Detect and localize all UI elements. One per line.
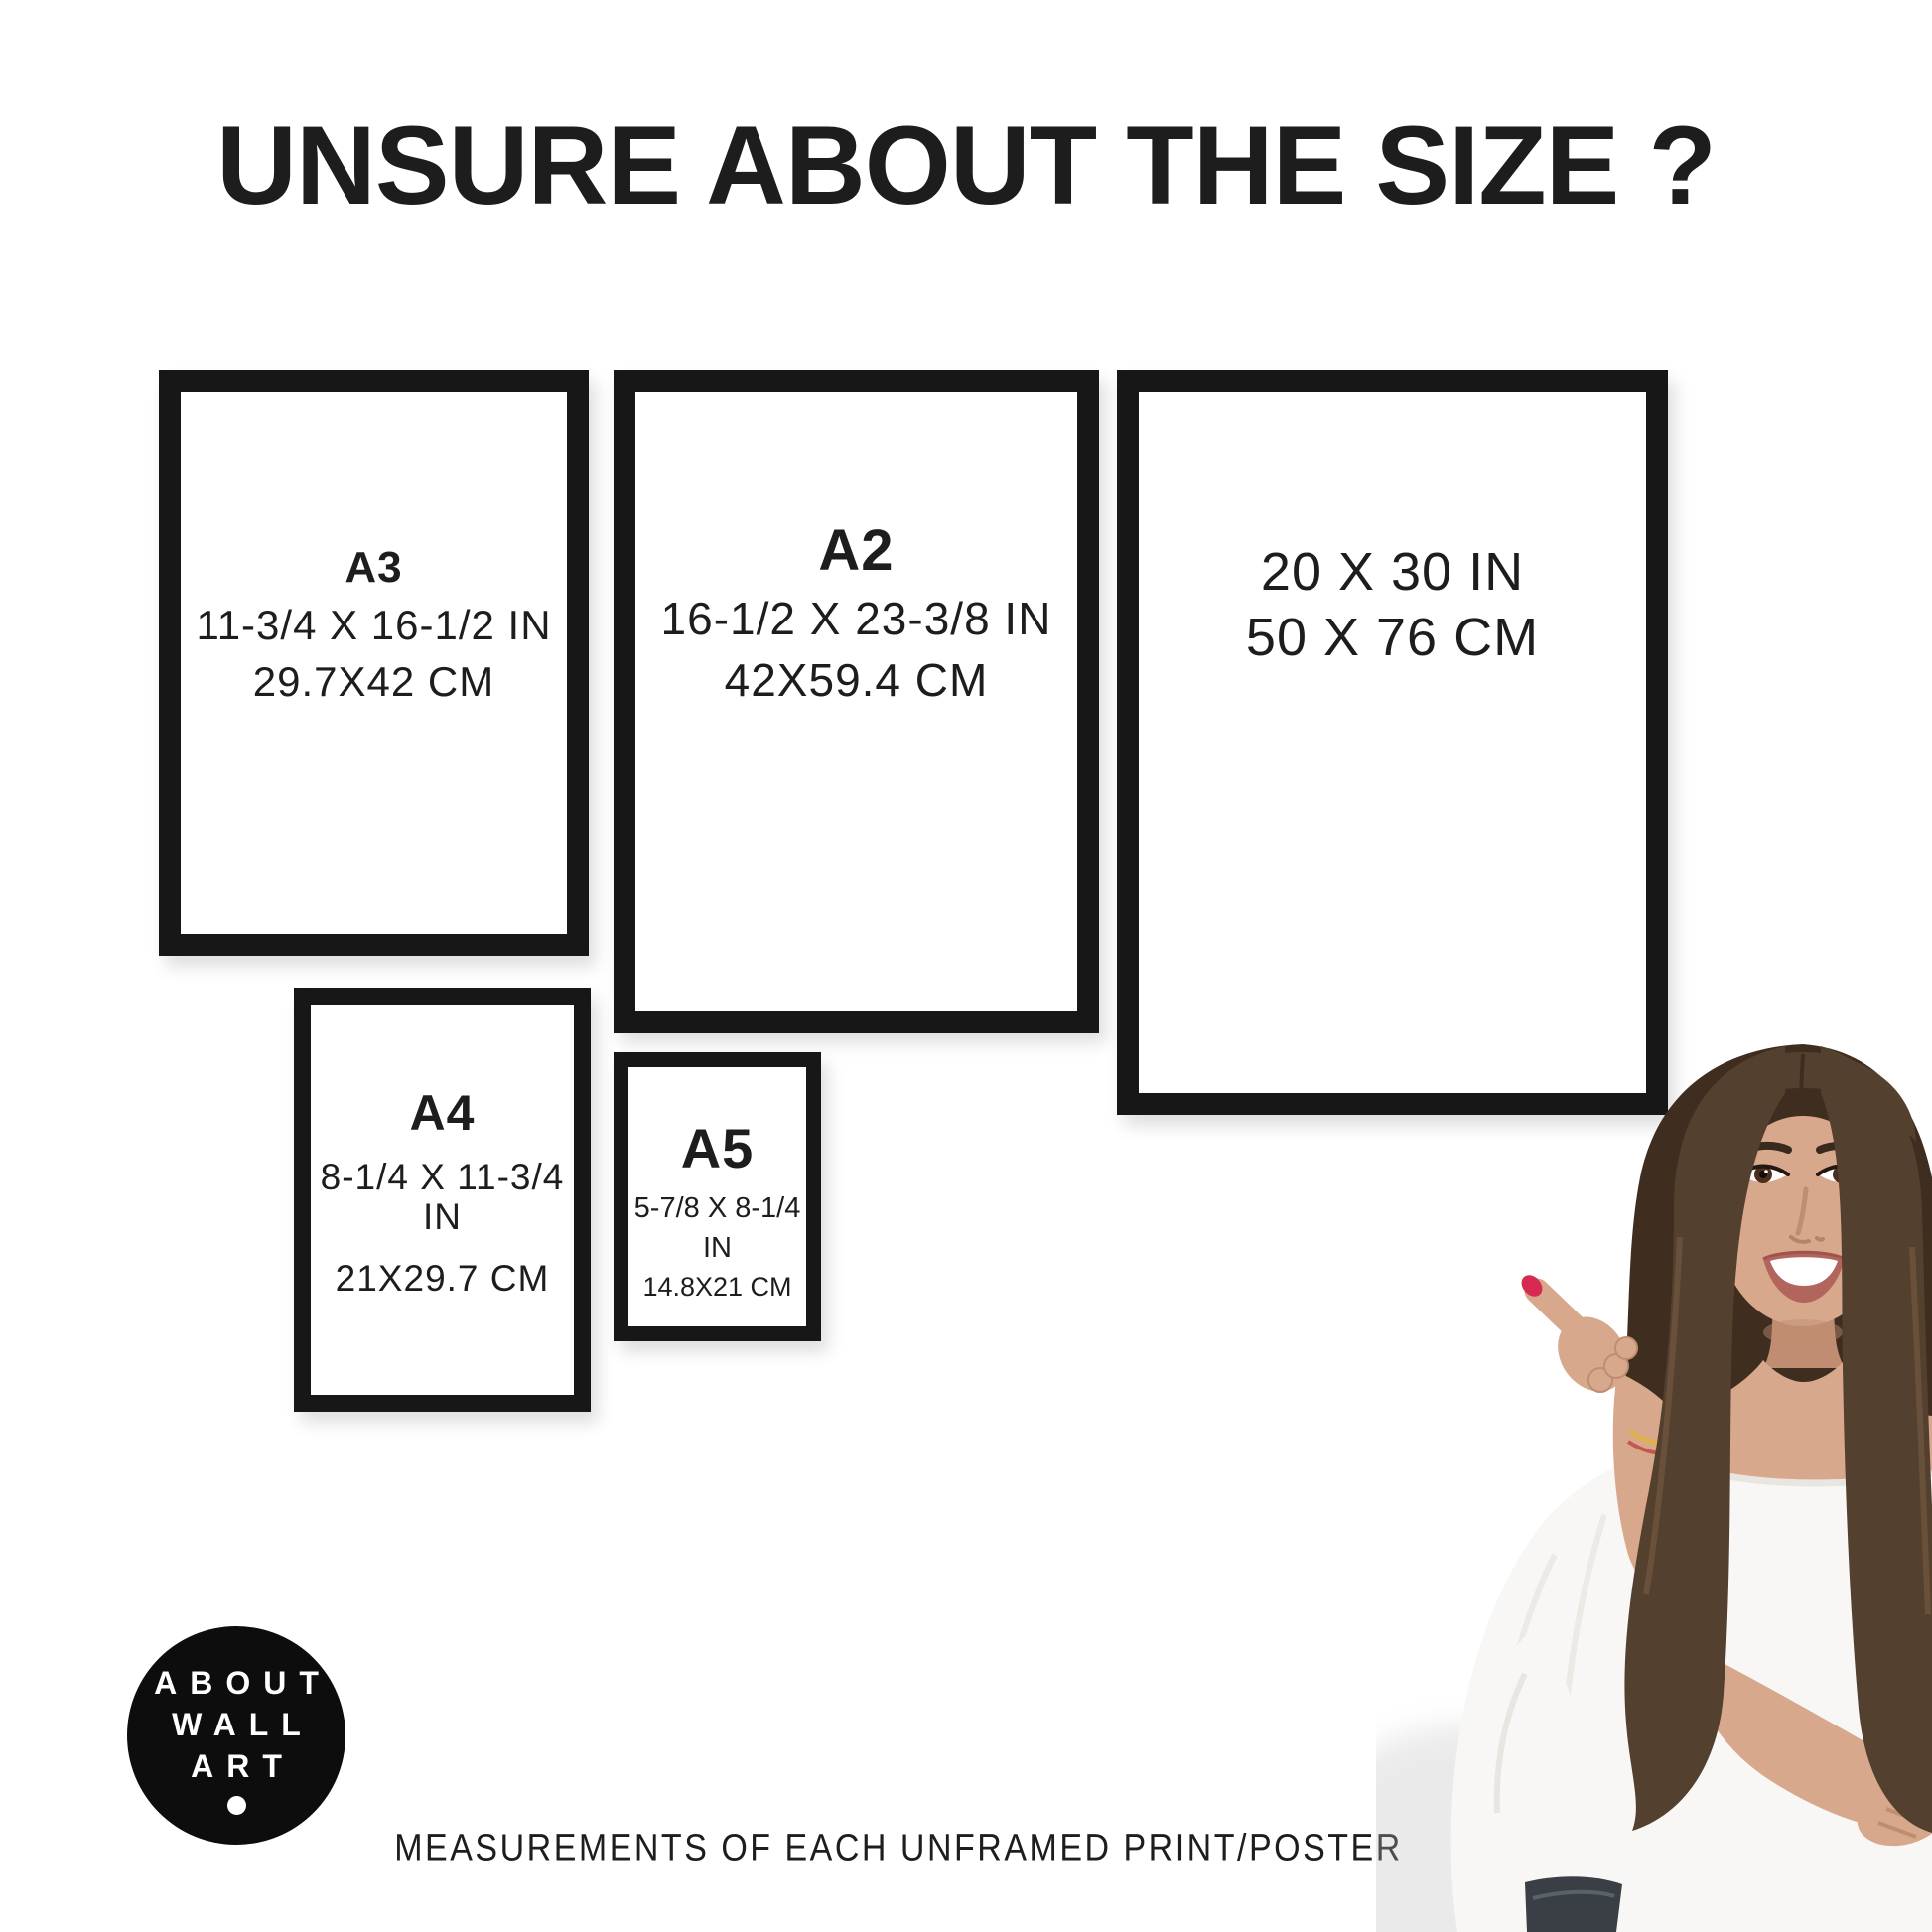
- frame-size-inches: 20 X 30 IN: [1139, 539, 1646, 605]
- size-frame-a4: A4 8-1/4 X 11-3/4 IN 21X29.7 CM: [294, 988, 591, 1412]
- frame-size-cm: 50 X 76 CM: [1139, 605, 1646, 670]
- eye-highlight-left: [1764, 1170, 1768, 1173]
- logo-dot-icon: [227, 1796, 246, 1815]
- frame-size-label: A5: [628, 1117, 806, 1180]
- frame-size-label: A2: [635, 514, 1077, 588]
- chin-shadow: [1763, 1319, 1843, 1345]
- jeans: [1525, 1876, 1622, 1932]
- size-frame-20x30: 20 X 30 IN 50 X 76 CM: [1117, 370, 1668, 1115]
- index-finger: [1537, 1291, 1587, 1338]
- frame-size-cm: 29.7X42 CM: [181, 653, 567, 710]
- frame-size-label: A4: [311, 1084, 574, 1142]
- frame-size-cm: 42X59.4 CM: [635, 649, 1077, 711]
- frame-size-inches: 16-1/2 X 23-3/8 IN: [635, 588, 1077, 649]
- pointing-woman-photo: [1376, 1038, 1932, 1932]
- size-frame-a2: A2 16-1/2 X 23-3/8 IN 42X59.4 CM: [614, 370, 1099, 1033]
- frame-size-cm: 14.8X21 CM: [628, 1268, 806, 1306]
- logo-text-line: WALL: [172, 1704, 314, 1745]
- frame-size-inches: 11-3/4 X 16-1/2 IN: [181, 597, 567, 653]
- folded-finger: [1615, 1337, 1637, 1359]
- frame-size-label: A3: [181, 539, 567, 597]
- logo-text-line: ABOUT: [154, 1662, 332, 1704]
- logo-text-line: ART: [191, 1745, 295, 1787]
- page-title: UNSURE ABOUT THE SIZE ?: [0, 107, 1932, 224]
- frame-size-inches: 5-7/8 X 8-1/4 IN: [628, 1188, 806, 1268]
- frame-size-inches: 8-1/4 X 11-3/4 IN: [311, 1158, 574, 1237]
- size-guide-infographic: UNSURE ABOUT THE SIZE ? A3 11-3/4 X 16-1…: [0, 0, 1932, 1932]
- brand-logo: ABOUT WALL ART: [127, 1626, 345, 1845]
- hair-part: [1801, 1054, 1803, 1092]
- size-frame-a3: A3 11-3/4 X 16-1/2 IN 29.7X42 CM: [159, 370, 589, 956]
- frame-size-cm: 21X29.7 CM: [311, 1259, 574, 1299]
- size-frame-a5: A5 5-7/8 X 8-1/4 IN 14.8X21 CM: [614, 1052, 821, 1341]
